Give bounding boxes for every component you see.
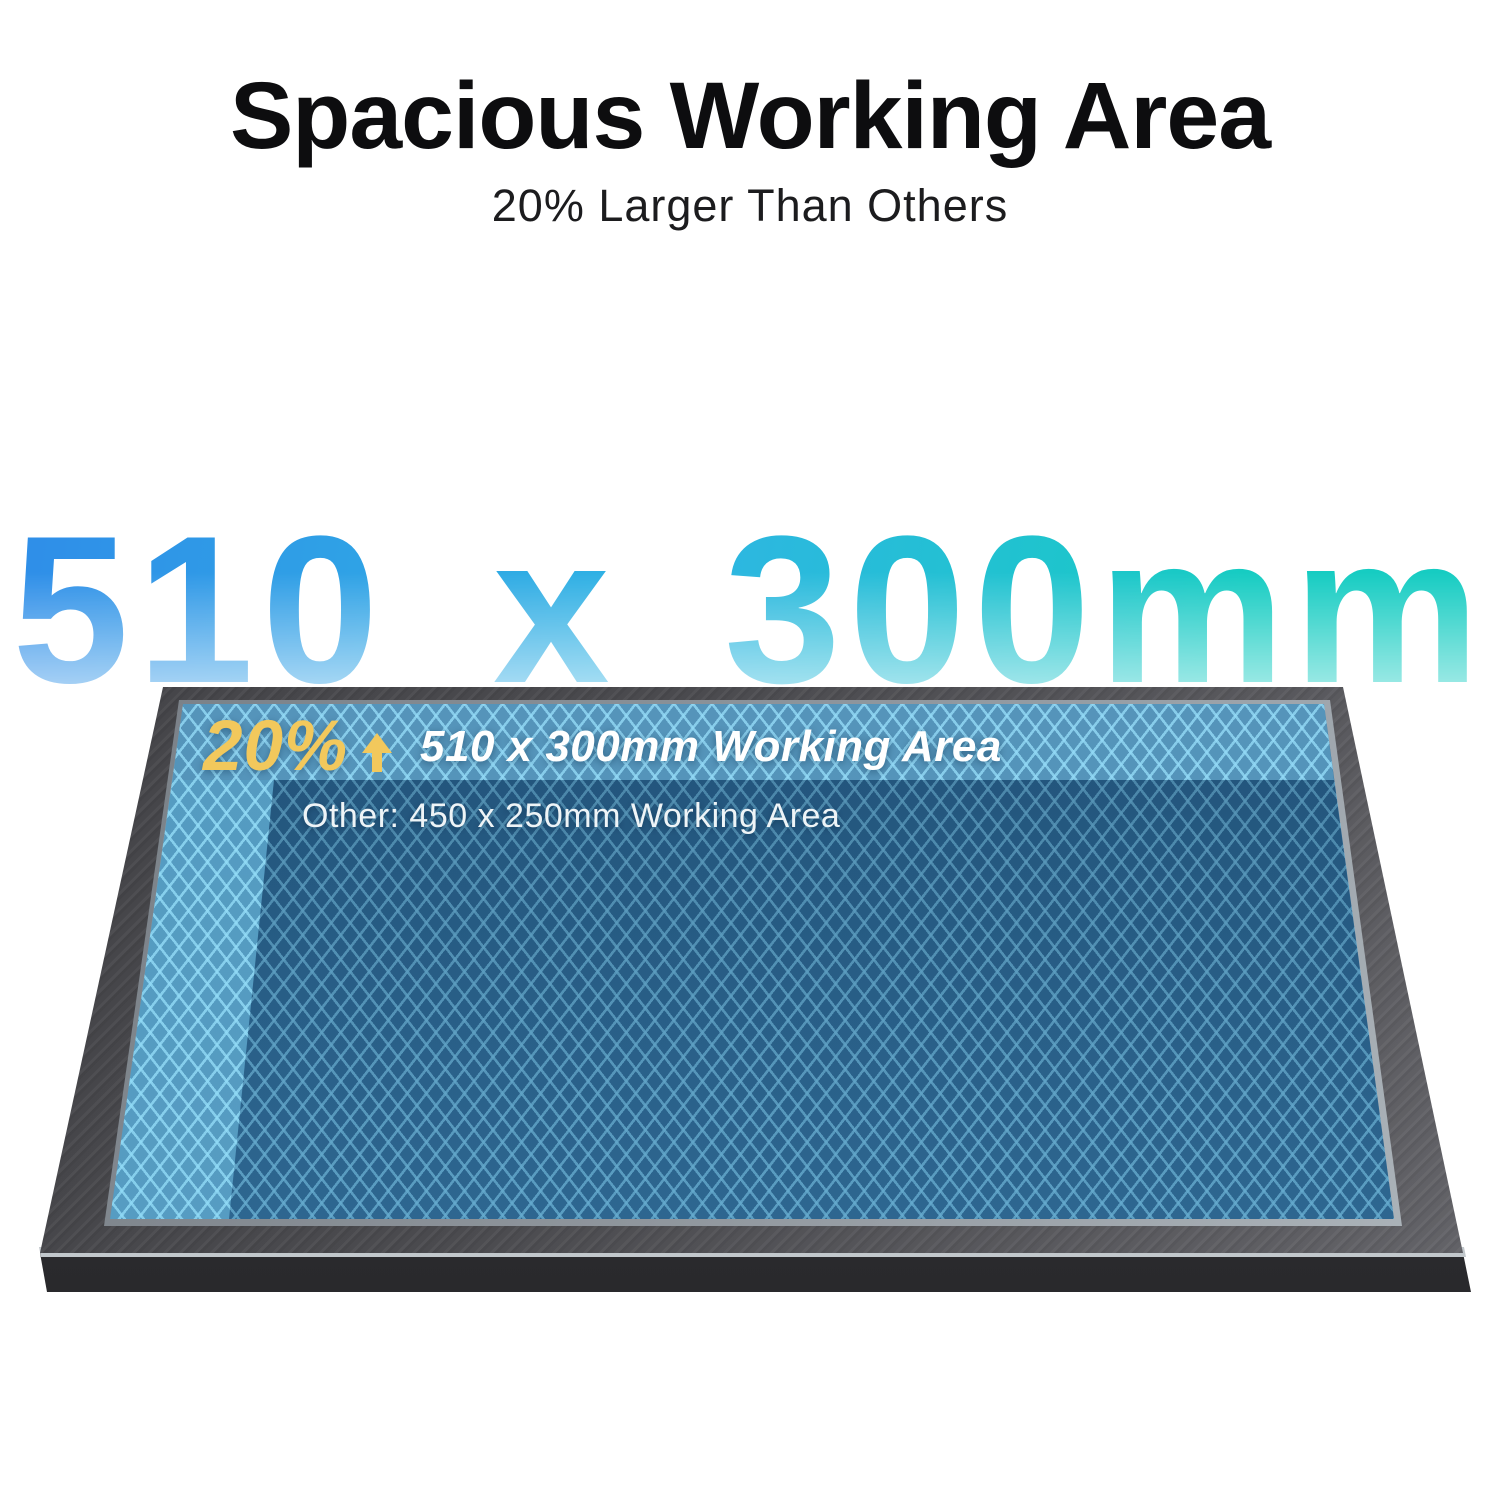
up-arrow-head <box>362 733 392 753</box>
hero-dimension-text: 510 x 300mm <box>0 505 1500 715</box>
competitor-area-label: Other: 450 x 250mm Working Area <box>302 797 840 836</box>
page-title: Spacious Working Area <box>0 62 1500 171</box>
working-area-label: 510 x 300mm Working Area <box>420 722 1002 772</box>
up-arrow-icon <box>360 733 394 779</box>
increase-percent-badge: 20% <box>203 706 348 787</box>
up-arrow-stem <box>372 752 382 772</box>
marketing-banner: Spacious Working Area 20% Larger Than Ot… <box>0 0 1500 1500</box>
page-subtitle: 20% Larger Than Others <box>0 180 1500 232</box>
